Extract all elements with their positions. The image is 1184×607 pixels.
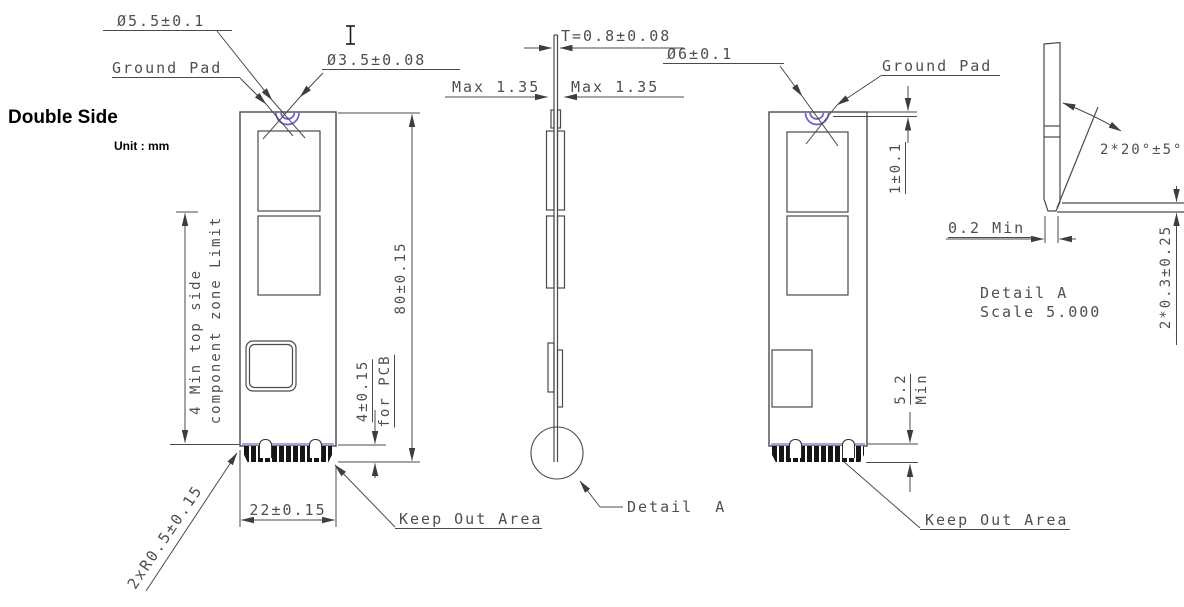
label-zone-limit-1: 4 Min top side bbox=[188, 269, 204, 415]
front-pcb-outline bbox=[240, 112, 336, 446]
front-chip-1 bbox=[258, 131, 320, 211]
leader-ground-pad-back bbox=[837, 75, 882, 105]
side-chip-pair-1 bbox=[547, 131, 555, 210]
unit-label: Unit : mm bbox=[114, 139, 169, 153]
detail-chamfer-line bbox=[1057, 107, 1098, 208]
label-ground-pad-front: Ground Pad bbox=[112, 59, 240, 78]
side-chip-bottom-left bbox=[548, 343, 554, 392]
label-detail-callout: Detail A bbox=[627, 498, 726, 516]
label-keepout-front: Keep Out Area bbox=[395, 510, 542, 529]
detail-edge-profile bbox=[1044, 43, 1060, 212]
label-length-dim: 80±0.15 bbox=[393, 241, 409, 314]
label-clearance-min: Min bbox=[914, 373, 930, 404]
label-width-dim: 22±0.15 bbox=[244, 501, 332, 519]
label-notch-depth: 1±0.1 bbox=[888, 142, 906, 194]
label-clearance-value: 5.2 bbox=[893, 373, 911, 404]
back-key-notch-2 bbox=[842, 439, 855, 458]
leader-dia-outer-back bbox=[780, 66, 802, 96]
back-chip-3 bbox=[772, 350, 812, 407]
side-chip-bottom-right bbox=[558, 350, 563, 407]
label-dia-hole-front: Ø3.5±0.08 bbox=[322, 51, 460, 70]
back-pcb-outline bbox=[769, 112, 867, 446]
text-cursor-icon bbox=[346, 26, 355, 44]
leader-corner-radius bbox=[146, 453, 237, 591]
front-key-notch-1 bbox=[259, 439, 272, 458]
front-chip-3-inner bbox=[250, 345, 293, 388]
leader-dia-hole bbox=[300, 73, 323, 97]
front-view bbox=[240, 112, 336, 446]
label-standoff: 0.2 Min bbox=[948, 219, 1032, 238]
front-key-notch-2 bbox=[309, 439, 322, 458]
label-detail-scale: Scale 5.000 bbox=[980, 303, 1101, 321]
label-detail-title: Detail A bbox=[980, 284, 1068, 302]
leader-keepout-front bbox=[335, 465, 395, 527]
leader-detail-a bbox=[580, 481, 600, 507]
label-zone-limit-2: component zone Limit bbox=[208, 216, 224, 425]
leader-ground-pad bbox=[240, 78, 266, 104]
dim-angle-arc bbox=[1063, 103, 1121, 131]
label-dia-outer-front: Ø5.5±0.1 bbox=[103, 12, 232, 31]
label-max-left: Max 1.35 bbox=[452, 78, 540, 96]
back-view bbox=[769, 112, 867, 446]
back-screw-notch-icon bbox=[806, 113, 829, 125]
drawing-sheet: Double Side Unit : mm Ø5.5±0.1 Ground Pa… bbox=[0, 0, 1184, 607]
label-keepout-back: Keep Out Area bbox=[920, 511, 1070, 530]
back-chip-2 bbox=[787, 216, 848, 295]
back-chip-1 bbox=[787, 132, 848, 212]
front-chip-3 bbox=[246, 341, 296, 391]
label-dia-outer-back: Ø6±0.1 bbox=[663, 45, 784, 64]
side-chip-pair-2 bbox=[547, 216, 555, 288]
front-screw-notch-icon bbox=[276, 113, 299, 125]
side-view bbox=[531, 35, 583, 479]
front-chip-2 bbox=[258, 216, 320, 295]
back-key-notch-1 bbox=[789, 439, 802, 458]
label-angle: 2*20°±5° bbox=[1100, 141, 1183, 159]
label-finger-height-1: 4±0.15 bbox=[355, 360, 373, 423]
label-max-right: Max 1.35 bbox=[571, 78, 659, 96]
label-thickness: T=0.8±0.08 bbox=[561, 27, 671, 45]
label-ground-pad-back: Ground Pad bbox=[882, 57, 1000, 76]
sheet-title: Double Side bbox=[8, 107, 118, 129]
label-lead-length: 2*0.3±0.25 bbox=[1158, 225, 1174, 329]
label-finger-height-2: for PCB bbox=[377, 354, 395, 427]
